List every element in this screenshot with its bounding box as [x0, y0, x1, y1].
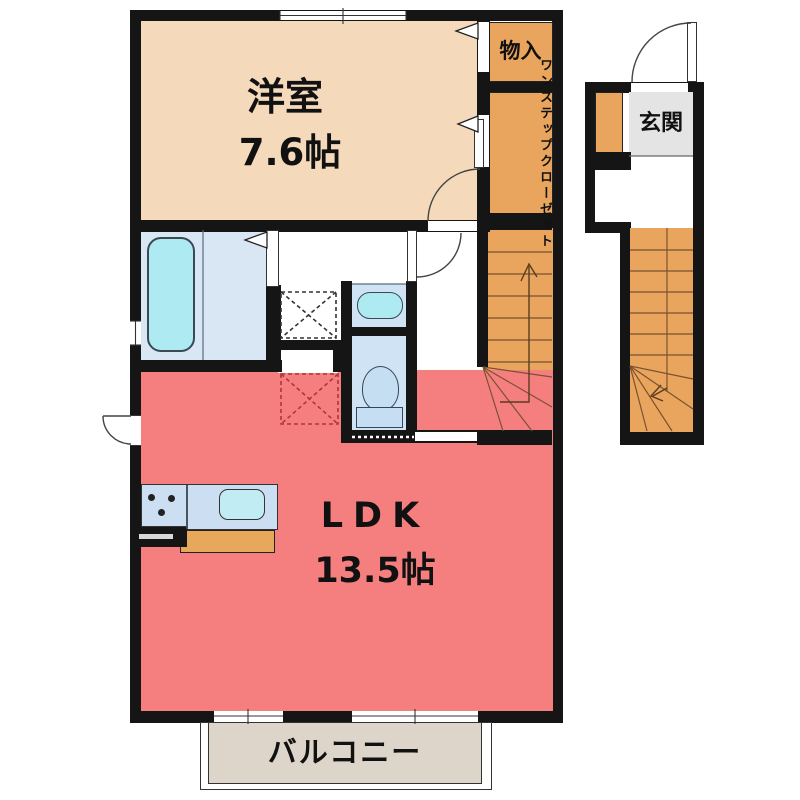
wall-toilet-right: [406, 325, 417, 443]
hall-ldk-opening: [415, 430, 477, 443]
entrance-right-wall: [693, 82, 704, 445]
wall-hall-washroom: [406, 281, 417, 329]
western-room-door-leaf: [474, 119, 484, 168]
wall-toilet-bottom: [341, 430, 417, 443]
shoe-cabinet: [595, 92, 623, 153]
wall-bath-washroom: [266, 285, 281, 372]
kitchen-unit-slit: [139, 534, 173, 539]
western-room-label: 洋室: [185, 78, 385, 118]
external-stairs-bottom-wall: [620, 432, 704, 445]
stove-burner-2: [168, 495, 175, 502]
entrance-label: 玄関: [629, 112, 693, 135]
stove-burner-3: [158, 509, 165, 516]
balcony-window-left: [214, 711, 283, 722]
balcony-label: バルコニー: [215, 737, 475, 767]
kitchen-stove: [141, 484, 187, 527]
entrance-step-wall: [595, 152, 631, 170]
kitchen-cabinet: [180, 530, 275, 553]
entrance-left-wall: [585, 82, 595, 233]
door-arc-entrance: [632, 23, 691, 82]
entrance-door-gap: [631, 83, 688, 92]
floorplan-canvas: 洋室 7.6帖 LDK 13.5帖 物入 ワンステップ クローゼット 玄関 バル…: [0, 0, 800, 800]
left-window: [130, 321, 141, 345]
closet-label-col-left: クローゼット: [490, 154, 551, 250]
wall-vanity-left: [341, 281, 352, 331]
wall-toilet-left: [341, 330, 352, 443]
ldk-area: 13.5帖: [265, 553, 485, 590]
external-stairs-floor: [630, 228, 693, 432]
wall-stairs-left: [477, 230, 488, 367]
western-room-area: 7.6帖: [180, 134, 400, 173]
western-room-door-opening: [428, 221, 477, 231]
bathtub: [147, 237, 195, 352]
closet-label: ワンステップ クローゼット: [489, 97, 552, 211]
washroom-door-leaf: [407, 230, 417, 282]
washroom-corridor: [278, 348, 338, 373]
ldk-left-door-gap: [130, 415, 141, 446]
washbasin: [357, 292, 403, 319]
kitchen-sink: [219, 489, 265, 520]
toilet-tank: [356, 407, 403, 428]
bath-door-leaf: [266, 230, 279, 287]
ldk-label: LDK: [265, 498, 485, 535]
wall-bath-bottom: [130, 360, 282, 372]
wall-stairs-bottom: [477, 430, 552, 445]
door-arc-ldk-left: [103, 416, 131, 444]
top-window: [280, 11, 406, 20]
entrance-door-leaf: [687, 22, 697, 82]
closet-label-col-right: ワンステップ: [490, 58, 551, 154]
balcony-window-right: [352, 711, 478, 722]
western-room-floor: [141, 21, 481, 221]
toilet-bowl: [362, 366, 399, 411]
stove-burner-1: [148, 494, 155, 501]
